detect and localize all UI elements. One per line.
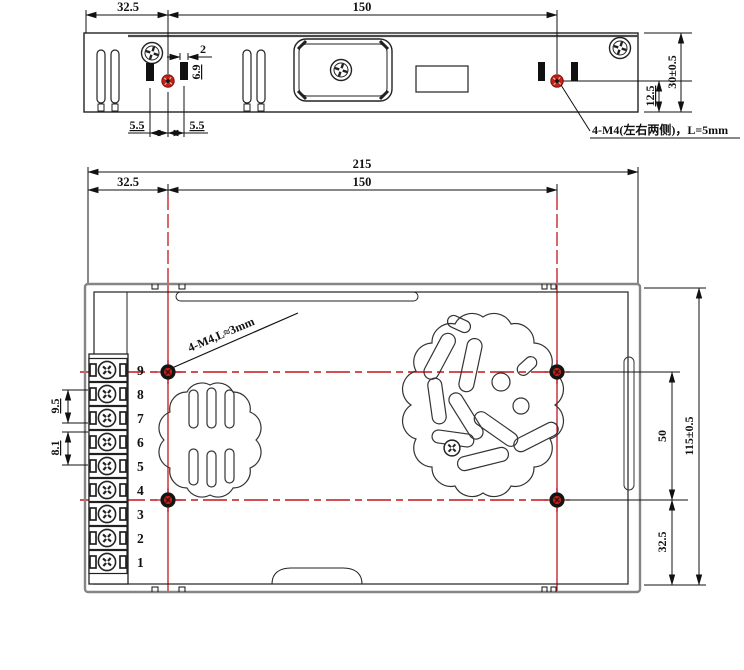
mounting-note-side: 4-M4(左右两侧)，L=5mm <box>592 122 728 137</box>
mounting-hole-icon <box>155 360 181 384</box>
dim-label: 150 <box>353 0 372 14</box>
screw-terminal <box>89 383 127 406</box>
plan-body-inner-outline <box>94 292 628 584</box>
dim-label: 6.9 <box>189 65 203 80</box>
dim-label: 115±0.5 <box>682 417 696 456</box>
terminal-number: 9 <box>137 363 144 378</box>
dim-label: 32.5 <box>117 175 139 189</box>
keyhole-slot-left <box>146 63 154 81</box>
terminal-number: 3 <box>137 507 144 522</box>
label-cover-plate <box>294 39 392 101</box>
power-supply-dimension-drawing: 32.5 150 2 6.9 5.5 5.5 12.5 30±0.5 4-M4(… <box>0 0 744 670</box>
terminal-number: 7 <box>137 411 144 426</box>
mounting-hole-icon <box>155 488 181 512</box>
mounting-note-plan: 4-M4,L≈3mm <box>186 314 257 355</box>
dim-label: 32.5 <box>655 532 669 553</box>
dim-label: 50 <box>655 430 669 442</box>
screw-icon <box>142 43 163 64</box>
keyhole-slot <box>571 62 578 81</box>
dim-label: 215 <box>353 157 372 171</box>
side-elevation-view: 32.5 150 2 6.9 5.5 5.5 12.5 30±0.5 4-M4(… <box>84 0 740 138</box>
large-vent-cutout <box>403 313 564 496</box>
dim-label: 2 <box>200 42 206 56</box>
dim-label: 150 <box>353 175 372 189</box>
screw-terminal <box>89 527 127 550</box>
terminal-number: 2 <box>137 531 144 546</box>
screw-terminal <box>89 407 127 430</box>
bottom-edge-tab <box>272 568 362 584</box>
screw-terminal <box>89 455 127 478</box>
screw-icon <box>444 440 460 456</box>
side-view-body-outline <box>84 33 638 112</box>
screw-terminal <box>89 431 127 454</box>
screw-terminal <box>89 503 127 526</box>
dim-label: 9.5 <box>48 399 62 414</box>
plan-view: 215 32.5 150 <box>48 157 706 592</box>
dim-label: 30±0.5 <box>665 55 679 89</box>
terminal-number: 6 <box>137 435 144 450</box>
dim-label: 12.5 <box>643 86 657 107</box>
terminal-numbers: 9 8 7 6 5 4 3 2 1 <box>137 363 144 570</box>
terminal-number: 4 <box>137 483 144 498</box>
dim-label: 5.5 <box>190 118 205 132</box>
terminal-number: 8 <box>137 387 144 402</box>
technical-drawing-page: 32.5 150 2 6.9 5.5 5.5 12.5 30±0.5 4-M4(… <box>0 0 744 670</box>
side-vent-slots-middle <box>243 50 265 111</box>
right-side-vent-slot <box>624 357 634 490</box>
dim-label: 8.1 <box>48 441 62 456</box>
screw-terminal <box>89 359 127 382</box>
terminal-block <box>89 354 128 584</box>
terminal-number: 1 <box>137 555 144 570</box>
terminal-number: 5 <box>137 459 144 474</box>
small-vent-cutout <box>159 383 261 497</box>
screw-icon <box>610 38 631 59</box>
keyhole-slot <box>538 62 545 81</box>
dim-label: 5.5 <box>130 118 145 132</box>
side-vent-slots-left <box>97 50 119 111</box>
screw-icon <box>331 60 352 81</box>
keyhole-slot-right <box>180 62 188 80</box>
screw-terminal <box>89 479 127 502</box>
top-edge-slot <box>176 292 418 301</box>
rectangular-cutout <box>416 66 468 92</box>
dim-label: 32.5 <box>117 0 139 14</box>
centerlines <box>80 196 557 592</box>
screw-terminal <box>89 551 127 574</box>
mounting-hole-icon <box>161 74 175 88</box>
